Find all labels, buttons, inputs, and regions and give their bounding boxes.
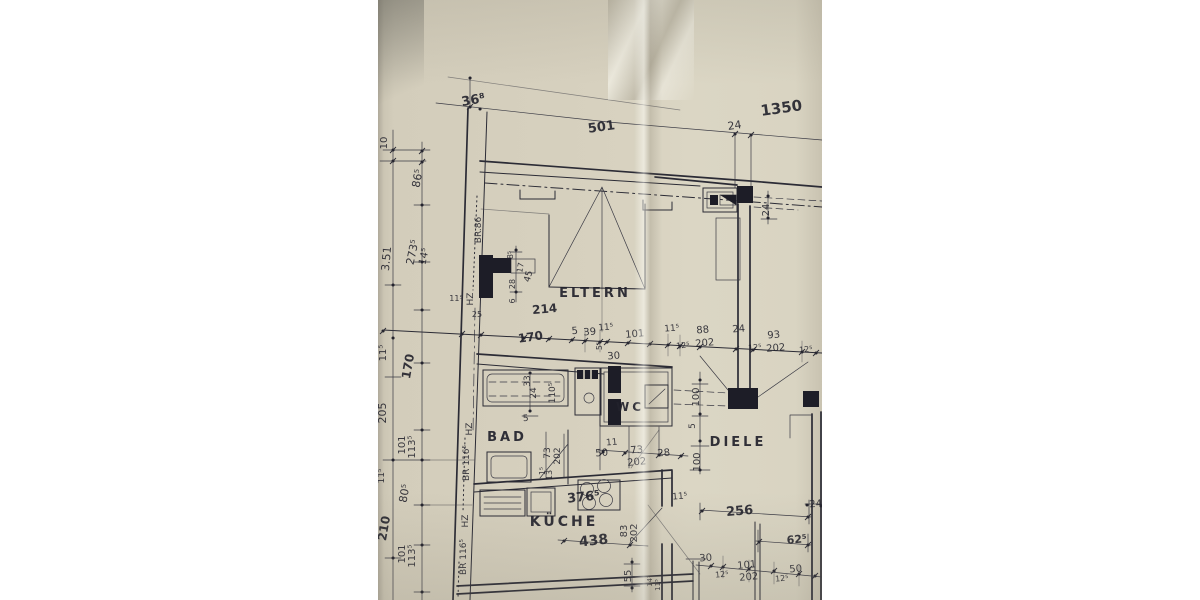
screenshot: ELTERN BAD WC DIELE KÜCHE 36⁸ 501 1350 2…	[0, 0, 1200, 600]
blueprint-photo: ELTERN BAD WC DIELE KÜCHE 36⁸ 501 1350 2…	[378, 0, 822, 600]
paper-edge-shading	[378, 0, 822, 600]
